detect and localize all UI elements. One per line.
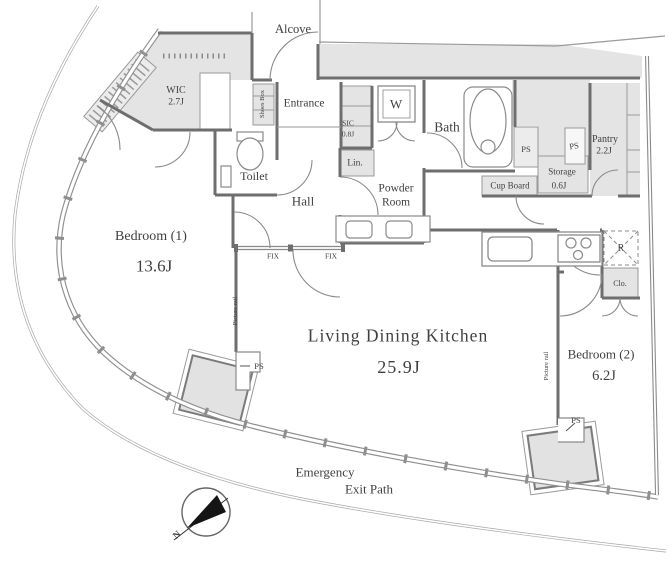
label-storage-size: 0.6J — [552, 182, 567, 191]
label-storage: Storage — [548, 168, 576, 177]
label-refrigerator: R — [618, 244, 625, 254]
label-bedroom2: Bedroom (2) — [568, 348, 635, 361]
bathtub-fixture — [464, 87, 512, 167]
label-pantry: Pantry — [592, 135, 618, 145]
label-bedroom2-size: 6.2J — [592, 369, 616, 384]
label-ps-2: PS — [569, 141, 580, 151]
label-powder-room-2: Room — [382, 197, 410, 209]
label-closet: Clo. — [613, 280, 627, 288]
label-ps-1: PS — [521, 145, 530, 154]
label-linen: Lin. — [347, 159, 363, 169]
label-alcove: Alcove — [275, 23, 311, 36]
label-cup-board: Cup Board — [490, 182, 529, 191]
label-toilet: Toilet — [240, 170, 268, 182]
label-ps-4: PS — [571, 416, 580, 425]
label-pantry-size: 2.2J — [596, 147, 612, 157]
label-picture-rail-right: Picture rail — [544, 352, 551, 381]
floor-plan: Alcove WIC 2.7J Shoes Box Entrance SIC 0… — [0, 0, 672, 572]
label-hall: Hall — [292, 195, 314, 208]
label-sic: SIC — [342, 119, 354, 127]
label-entrance: Entrance — [284, 98, 325, 110]
kitchen-counter — [482, 232, 602, 266]
label-powder-room-1: Powder — [378, 183, 413, 195]
label-washer: W — [390, 98, 402, 111]
kitchen-sink — [488, 237, 532, 261]
stove — [558, 235, 600, 262]
label-emergency-2: Exit Path — [345, 483, 393, 496]
label-fix-1: FIX — [267, 252, 279, 260]
floor-plan-drawing — [0, 0, 672, 572]
label-ps-3: PS — [254, 362, 263, 371]
label-bedroom1: Bedroom (1) — [115, 230, 187, 244]
compass-north-icon — [174, 488, 230, 540]
label-bedroom1-size: 13.6J — [136, 258, 172, 275]
powder-vanity — [336, 216, 430, 242]
label-ldk: Living Dining Kitchen — [308, 327, 488, 345]
label-picture-rail-left: Picture rail — [233, 297, 240, 326]
label-sic-size: 0.8J — [342, 130, 354, 138]
label-ldk-size: 25.9J — [377, 358, 421, 376]
label-emergency-1: Emergency — [296, 466, 355, 479]
wic-notch — [200, 73, 230, 130]
label-bath: Bath — [434, 120, 460, 134]
label-shoes-box: Shoes Box — [260, 90, 267, 118]
label-wic-size: 2.7J — [168, 98, 184, 108]
label-wic: WIC — [166, 86, 185, 96]
label-fix-2: FIX — [325, 252, 337, 260]
